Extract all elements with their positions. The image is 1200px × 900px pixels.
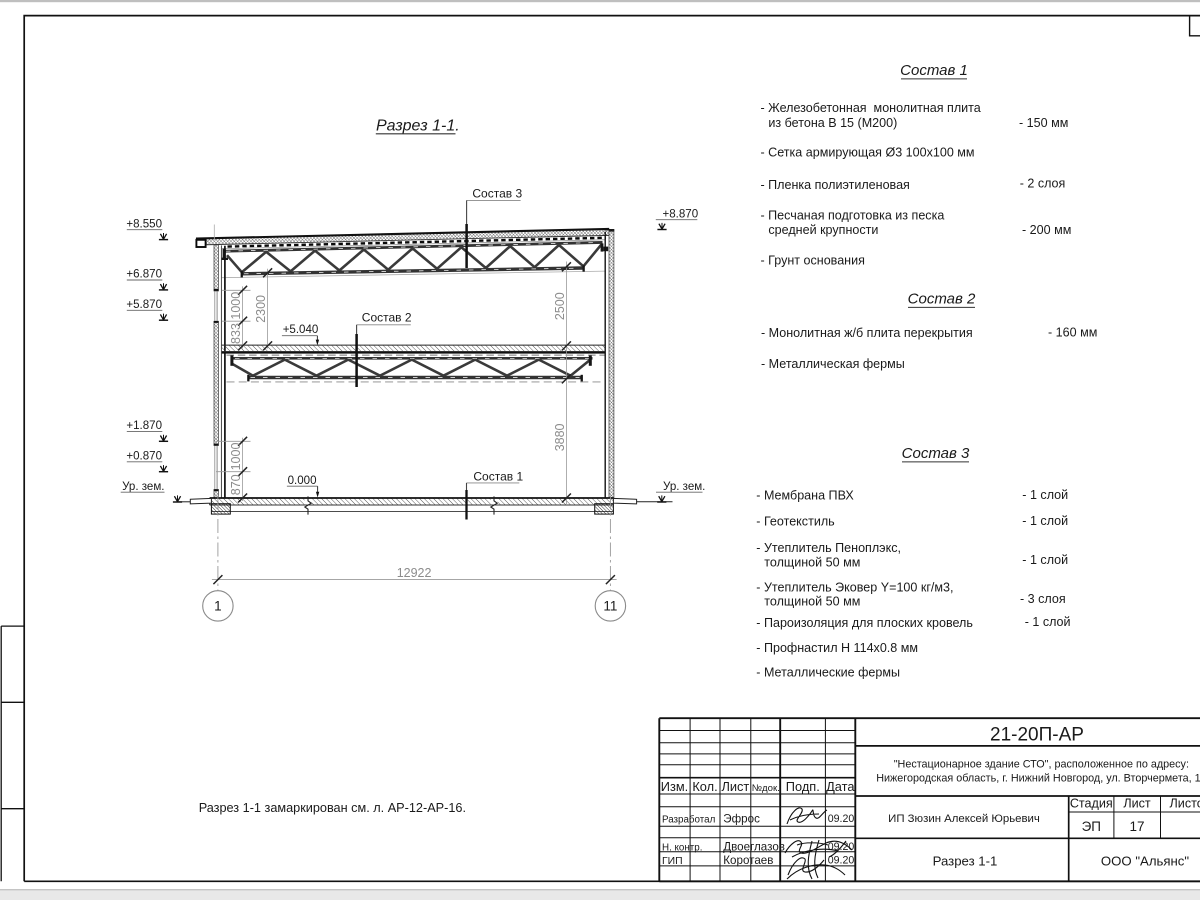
svg-text:+6.870: +6.870 (126, 269, 162, 281)
svg-text:- Утеплитель Эковер Y=100 кг/м: - Утеплитель Эковер Y=100 кг/м3, (756, 581, 953, 595)
svg-text:Разрез 1-1 замаркирован см. л.: Разрез 1-1 замаркирован см. л. АР-12-АР-… (199, 801, 466, 815)
svg-text:2500: 2500 (553, 292, 567, 320)
svg-text:- Пароизоляция для плоских кро: - Пароизоляция для плоских кровель (756, 616, 973, 630)
svg-text:+8.870: +8.870 (663, 208, 699, 220)
svg-text:+5.870: +5.870 (126, 299, 162, 311)
svg-text:- 1 слой: - 1 слой (1022, 553, 1068, 567)
svg-text:- Железобетонная монолитная п: - Железобетонная монолитная плита (761, 101, 981, 115)
svg-text:"Нестационарное здание СТО", р: "Нестационарное здание СТО", расположенн… (894, 759, 1189, 771)
svg-text:ГИП: ГИП (662, 856, 683, 867)
svg-text:толщиной 50 мм: толщиной 50 мм (764, 595, 860, 609)
svg-text:ИП Зюзин Алексей Юрьевич: ИП Зюзин Алексей Юрьевич (888, 813, 1040, 825)
svg-text:Изм.: Изм. (661, 779, 688, 794)
svg-text:из бетона В 15 (М200): из бетона В 15 (М200) (768, 116, 897, 130)
svg-text:- Монолитная ж/б плита перекры: - Монолитная ж/б плита перекрытия (761, 326, 973, 340)
svg-text:Состав 3: Состав 3 (902, 445, 970, 462)
svg-text:ООО "Альянс": ООО "Альянс" (1101, 854, 1189, 869)
svg-text:Лист: Лист (721, 779, 749, 794)
svg-text:Состав 2: Состав 2 (908, 291, 976, 308)
svg-text:+1.870: +1.870 (126, 420, 162, 432)
svg-text:толщиной 50 мм: толщиной 50 мм (764, 556, 860, 570)
svg-text:17: 17 (1129, 819, 1144, 834)
svg-text:833: 833 (229, 323, 243, 344)
svg-text:Разрез 1-1.: Разрез 1-1. (376, 118, 460, 135)
svg-text:Нижегородская область, г. Нижн: Нижегородская область, г. Нижний Новгоро… (876, 773, 1200, 785)
svg-text:Состав 2: Состав 2 (362, 310, 412, 324)
svg-text:3880: 3880 (553, 423, 567, 451)
svg-text:Стадия: Стадия (1070, 797, 1113, 811)
svg-text:1000: 1000 (229, 292, 243, 320)
svg-text:- Утеплитель Пеноплэкс,: - Утеплитель Пеноплэкс, (756, 541, 901, 555)
svg-text:- Песчаная подготовка из песка: - Песчаная подготовка из песка (761, 209, 945, 223)
svg-text:- Грунт основания: - Грунт основания (761, 254, 865, 268)
svg-text:1000: 1000 (229, 443, 243, 471)
svg-text:+5.040: +5.040 (283, 324, 319, 336)
svg-text:2300: 2300 (254, 295, 268, 323)
svg-text:- Мембрана ПВХ: - Мембрана ПВХ (756, 489, 854, 503)
svg-text:1: 1 (214, 599, 222, 614)
svg-text:Ур. зем.: Ур. зем. (122, 481, 164, 493)
svg-text:Дата: Дата (826, 779, 855, 794)
svg-text:Ур. зем.: Ур. зем. (663, 481, 705, 493)
svg-text:№док.: №док. (752, 783, 780, 794)
svg-text:Состав 3: Состав 3 (472, 187, 522, 201)
svg-text:- Профнастил Н 114х0.8 мм: - Профнастил Н 114х0.8 мм (756, 641, 918, 655)
svg-text:0.000: 0.000 (288, 475, 317, 487)
svg-text:Подп.: Подп. (786, 779, 820, 794)
svg-text:Состав 1: Состав 1 (473, 469, 523, 483)
svg-text:- Металлические фермы: - Металлические фермы (756, 666, 900, 680)
svg-text:- 1 слой: - 1 слой (1022, 514, 1068, 528)
svg-text:Кол.: Кол. (692, 779, 717, 794)
svg-text:- 150 мм: - 150 мм (1019, 116, 1068, 130)
svg-text:12922: 12922 (397, 566, 432, 580)
svg-text:11: 11 (603, 599, 617, 614)
svg-text:870: 870 (229, 474, 243, 495)
svg-text:средней крупности: средней крупности (768, 223, 878, 237)
svg-text:- Геотекстиль: - Геотекстиль (756, 515, 835, 529)
svg-text:Разработал: Разработал (662, 815, 716, 826)
svg-text:Эфрос: Эфрос (723, 813, 760, 826)
svg-text:Н. контр.: Н. контр. (662, 842, 702, 853)
svg-text:- 2 слоя: - 2 слоя (1020, 177, 1066, 191)
svg-text:- 1 слой: - 1 слой (1022, 488, 1068, 502)
svg-text:+0.870: +0.870 (126, 450, 162, 462)
svg-text:- 1 слой: - 1 слой (1025, 615, 1071, 629)
svg-text:- Сетка армирующая Ø3 100х100: - Сетка армирующая Ø3 100х100 мм (761, 145, 975, 159)
svg-text:- 3 слоя: - 3 слоя (1020, 592, 1066, 606)
svg-text:Двоеглазов: Двоеглазов (723, 840, 785, 853)
svg-text:- Металлическая фермы: - Металлическая фермы (761, 357, 905, 371)
svg-text:09.20: 09.20 (828, 813, 855, 825)
svg-text:Состав 1: Состав 1 (900, 62, 968, 79)
svg-text:Разрез 1-1: Разрез 1-1 (933, 854, 998, 869)
svg-text:21-20П-АР: 21-20П-АР (990, 725, 1084, 746)
svg-text:- Пленка полиэтиленовая: - Пленка полиэтиленовая (761, 178, 910, 192)
svg-text:- 200 мм: - 200 мм (1022, 223, 1071, 237)
svg-text:ЭП: ЭП (1082, 819, 1101, 834)
svg-text:Лист: Лист (1123, 797, 1151, 811)
svg-text:+8.550: +8.550 (126, 218, 162, 230)
svg-text:Коротаев: Коротаев (723, 854, 773, 867)
svg-text:- 160 мм: - 160 мм (1048, 326, 1097, 340)
svg-text:Листов: Листов (1170, 797, 1200, 811)
